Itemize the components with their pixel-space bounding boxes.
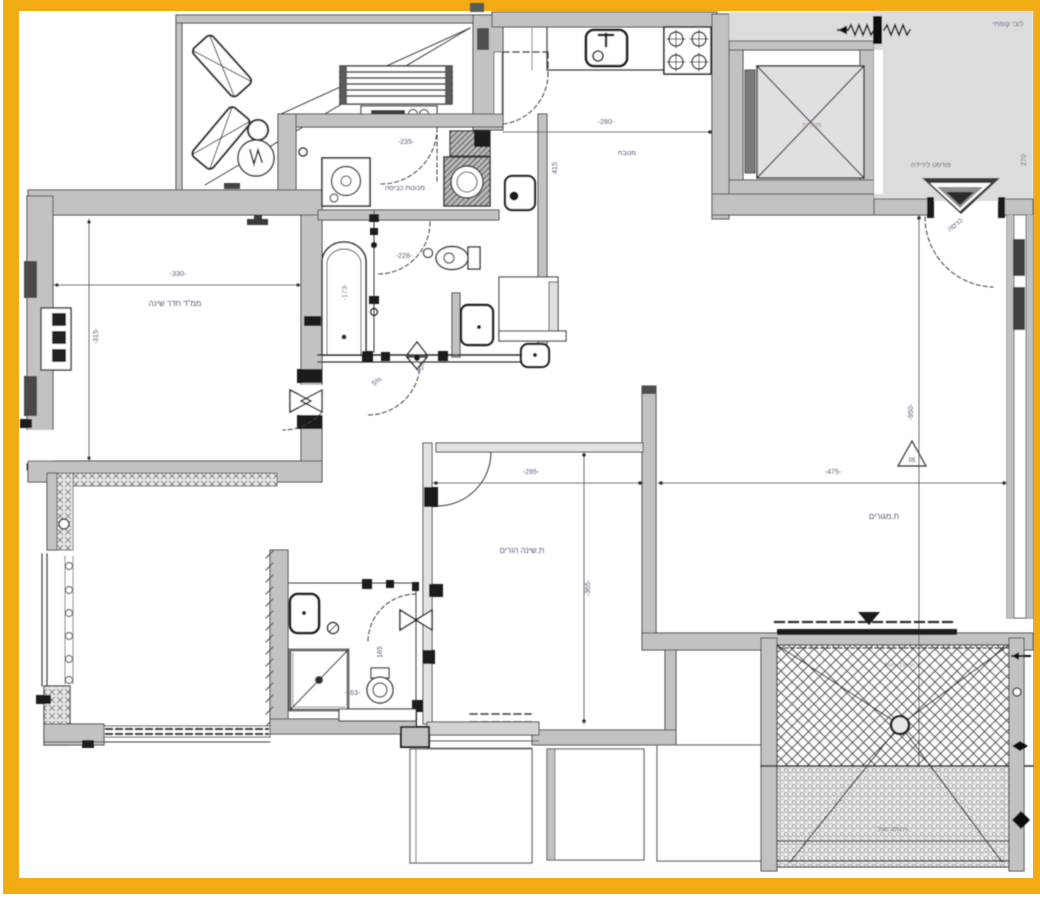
svg-text:-228-: -228- xyxy=(396,253,413,260)
svg-text:-315-: -315- xyxy=(93,327,100,344)
svg-text:מכונות כביסה: מכונות כביסה xyxy=(385,185,425,192)
svg-text:לובי קומתי: לובי קומתי xyxy=(993,20,1024,28)
svg-text:-295-: -295- xyxy=(523,469,540,476)
svg-text:165: 165 xyxy=(377,646,384,658)
svg-text:05: 05 xyxy=(909,458,916,464)
svg-text:ממ"ד חדר שינה: ממ"ד חדר שינה xyxy=(149,299,202,308)
svg-text:-163-: -163- xyxy=(344,690,361,697)
svg-text:-280-: -280- xyxy=(598,119,615,126)
svg-text:-365-: -365- xyxy=(585,579,592,596)
svg-text:-235-: -235- xyxy=(398,139,415,146)
svg-text:415: 415 xyxy=(552,162,559,174)
svg-text:פרגולה מעל: פרגולה מעל xyxy=(878,825,908,833)
svg-text:פודסט לירידה: פודסט לירידה xyxy=(911,161,951,169)
svg-text:-950-: -950- xyxy=(908,403,915,420)
svg-text:מטבח: מטבח xyxy=(618,150,636,157)
svg-text:-475-: -475- xyxy=(825,469,842,476)
svg-text:פרגולה מעל: פרגולה מעל xyxy=(885,661,915,669)
svg-text:ת.מגורים: ת.מגורים xyxy=(869,512,899,521)
svg-text:מעלית: מעלית xyxy=(802,121,821,129)
svg-text:-330-: -330- xyxy=(170,271,187,278)
svg-text:270: 270 xyxy=(1021,154,1028,166)
svg-text:-173-: -173- xyxy=(342,283,349,300)
svg-text:ת.שינה הורים: ת.שינה הורים xyxy=(500,546,545,555)
